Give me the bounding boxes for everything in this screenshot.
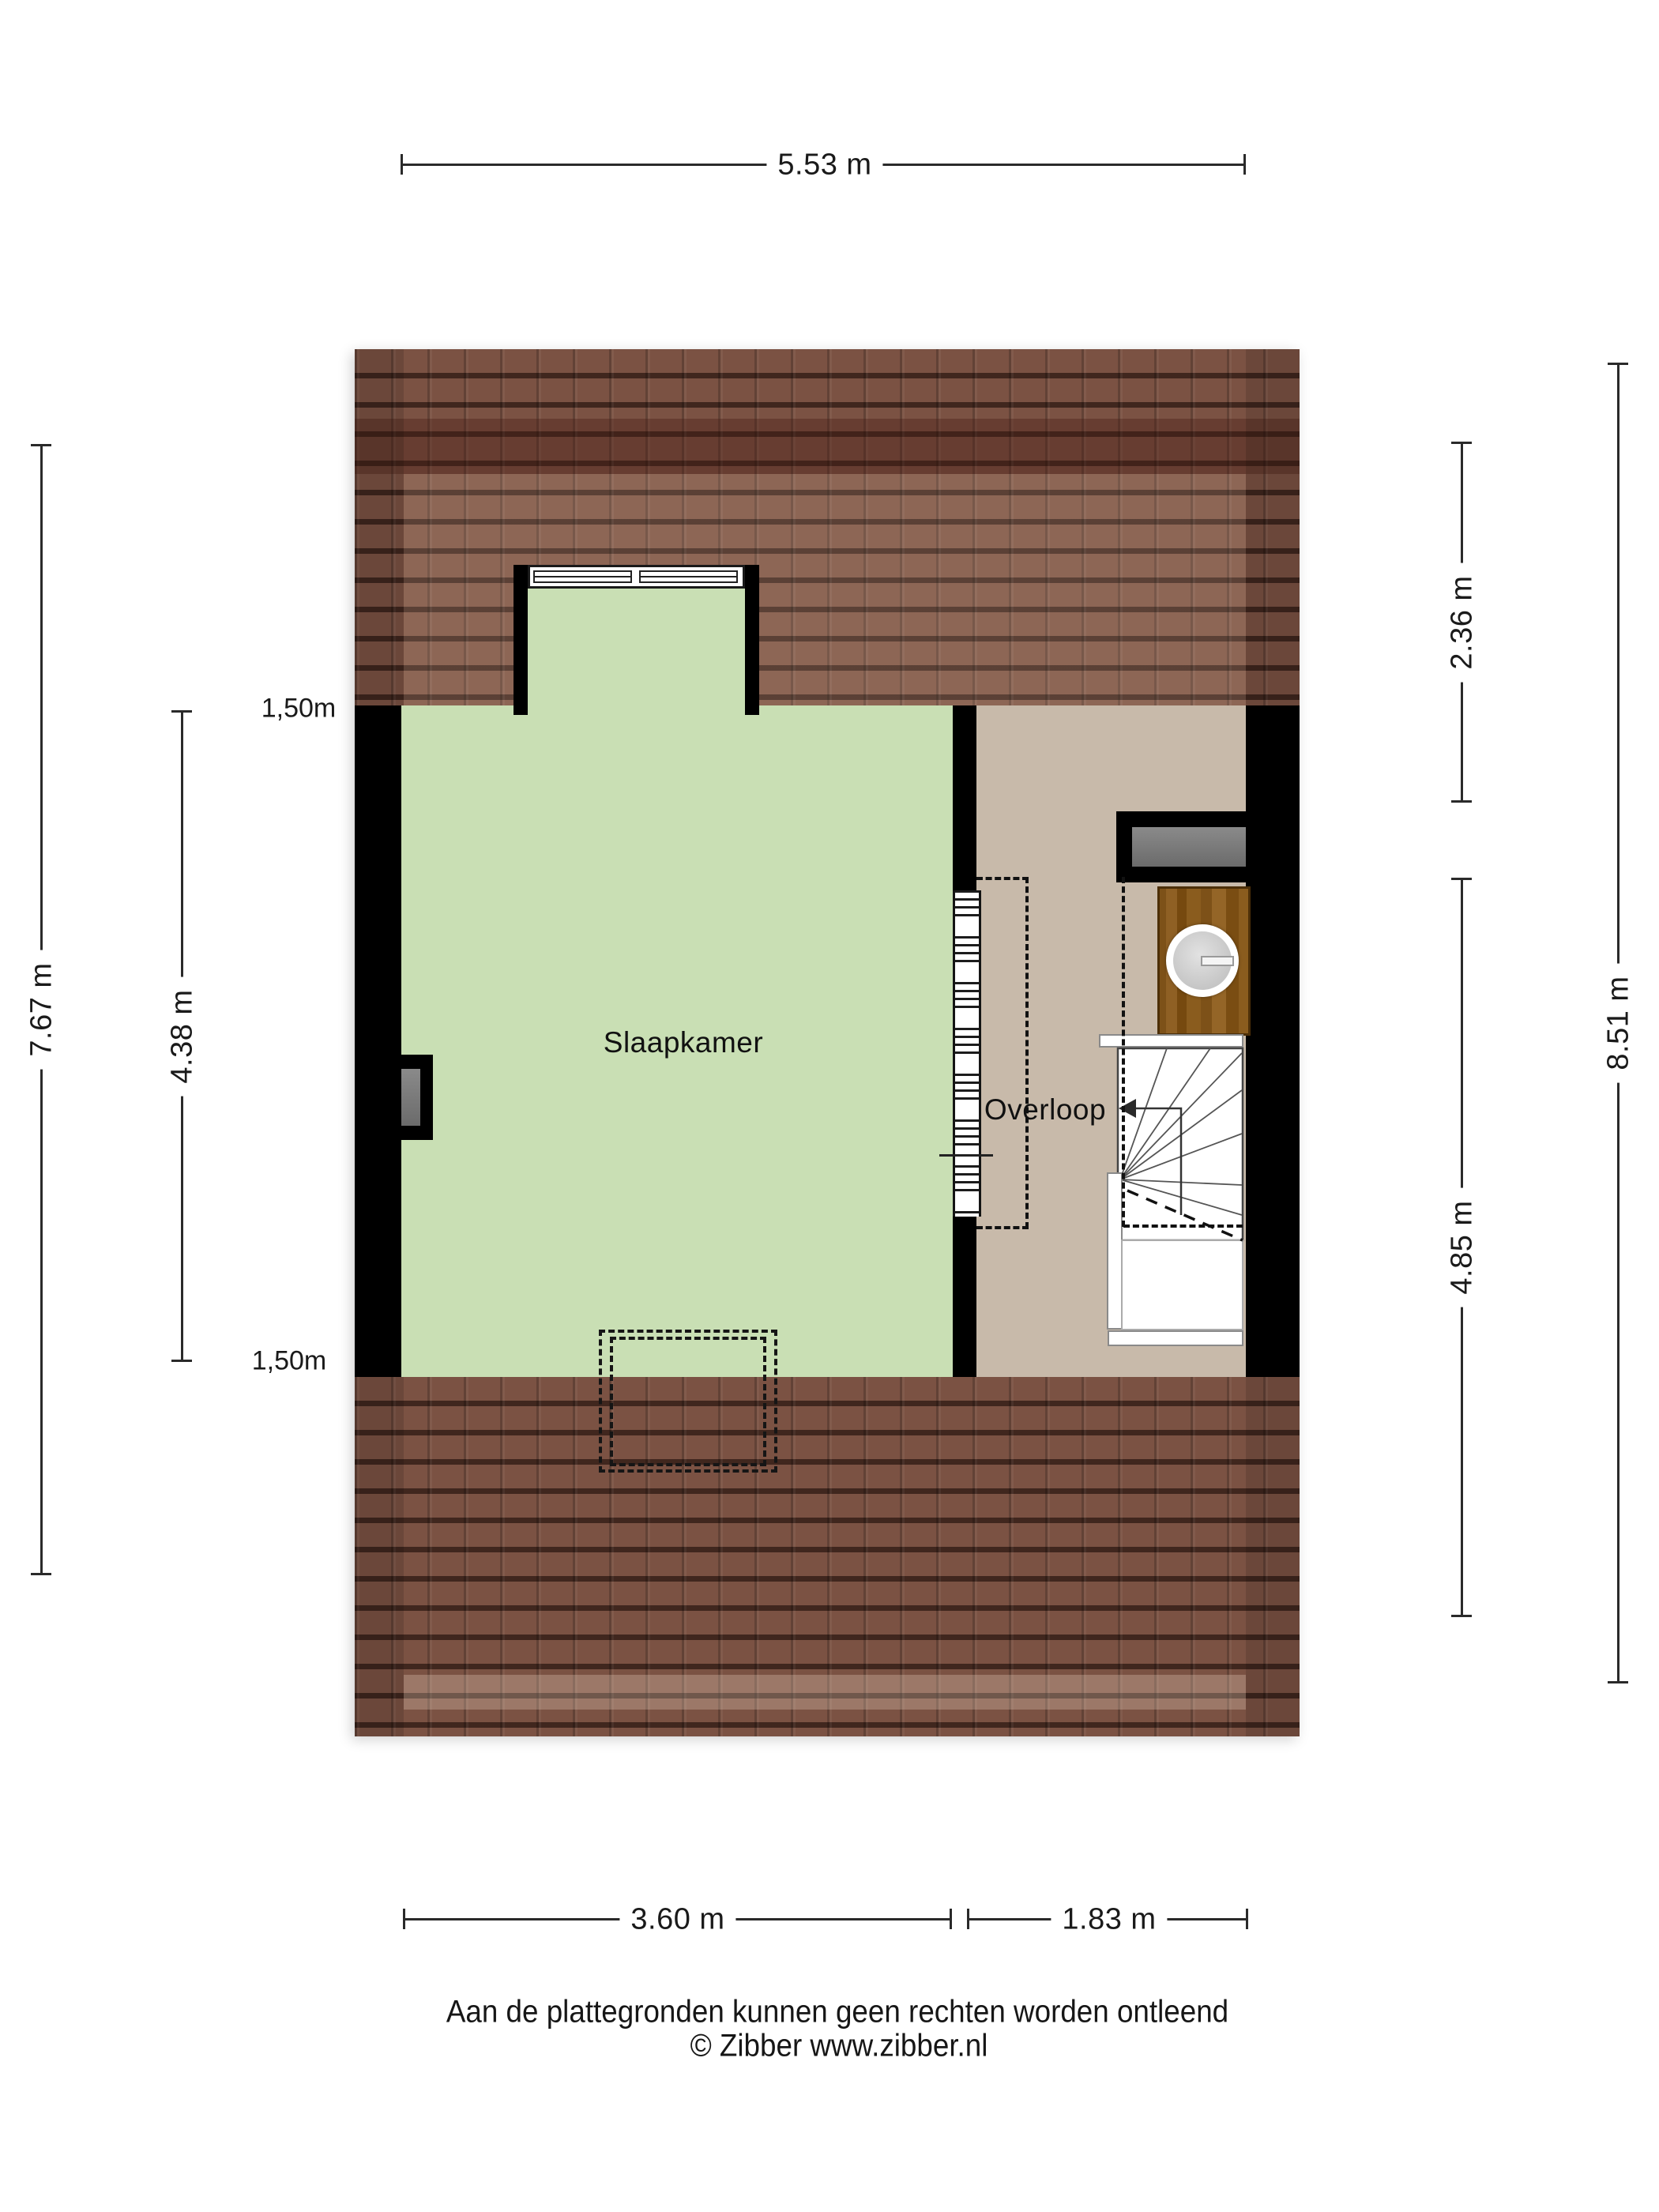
dim-tick	[1608, 363, 1628, 365]
room-label-slaapkamer: Slaapkamer	[604, 1026, 763, 1059]
wall-left	[355, 705, 401, 1377]
dim-tick	[1243, 154, 1246, 175]
dormer-jamb-left	[513, 565, 528, 715]
partition-wall-top	[953, 705, 976, 890]
partition-glazed	[953, 890, 981, 1217]
faucet-icon	[1201, 956, 1234, 966]
dim-tick	[1451, 1615, 1472, 1617]
height-label-top: 1,50m	[261, 694, 337, 724]
partition-tick	[939, 1154, 993, 1157]
dim-label-right-outer: 8.51 m	[1601, 963, 1638, 1082]
dim-tick	[1608, 1681, 1628, 1683]
height-dash-bottom	[976, 1226, 1029, 1229]
roof-top	[355, 349, 1300, 705]
window-sash-right	[639, 570, 738, 583]
dim-label-right-top: 2.36 m	[1444, 562, 1481, 682]
dim-label-left-inner: 4.38 m	[164, 976, 201, 1096]
chimney-inset	[401, 1069, 420, 1126]
dim-tick	[171, 1360, 192, 1362]
height-dash-vertical-1	[1025, 877, 1029, 1228]
flue-inset	[1132, 827, 1246, 867]
room-label-overloop: Overloop	[984, 1093, 1106, 1127]
dim-label-top: 5.53 m	[766, 147, 882, 184]
dim-tick	[31, 1573, 51, 1575]
stair-lower-flight	[1122, 1240, 1243, 1330]
stair-rail-bottom	[1108, 1331, 1243, 1345]
dim-tick	[403, 1909, 405, 1929]
dim-label-right-bottom: 4.85 m	[1444, 1187, 1481, 1307]
dormer-window	[528, 565, 745, 589]
dim-label-bottom-left: 3.60 m	[619, 1902, 735, 1939]
stair-rail-left	[1108, 1173, 1122, 1329]
dim-tick	[950, 1909, 952, 1929]
roof-window-dashed-inner	[610, 1337, 766, 1466]
roof-bottom	[355, 1377, 1300, 1736]
dim-tick	[31, 444, 51, 446]
height-dash-vertical-2	[1122, 877, 1125, 1227]
height-label-bottom: 1,50m	[252, 1346, 327, 1377]
dim-tick	[1451, 878, 1472, 880]
washbasin-cabinet	[1157, 886, 1251, 1036]
partition-wall-bottom	[953, 1217, 976, 1377]
staircase	[1098, 1031, 1250, 1351]
dormer-jamb-right	[745, 565, 759, 715]
floorplan-page: 5.53 m 7.67 m 4.38 m 1,50m 1,50m 2.36 m …	[0, 0, 1659, 2212]
dim-tick	[1451, 800, 1472, 803]
height-dash-top	[976, 877, 1029, 880]
copyright-text: © Zibber www.zibber.nl	[690, 2029, 988, 2064]
height-dash-stairs	[1123, 1224, 1243, 1228]
dim-label-left-outer: 7.67 m	[24, 950, 61, 1069]
window-sash-left	[533, 570, 632, 583]
dim-tick	[1246, 1909, 1248, 1929]
wall-right	[1246, 705, 1300, 1377]
dormer-alcove	[528, 589, 745, 707]
dim-tick	[401, 154, 403, 175]
dim-label-bottom-right: 1.83 m	[1051, 1902, 1167, 1939]
dim-tick	[967, 1909, 969, 1929]
floorplan: Slaapkamer Overloop	[355, 349, 1300, 1736]
dim-tick	[171, 710, 192, 713]
disclaimer-text: Aan de plattegronden kunnen geen rechten…	[446, 1995, 1228, 2030]
dim-tick	[1451, 442, 1472, 444]
